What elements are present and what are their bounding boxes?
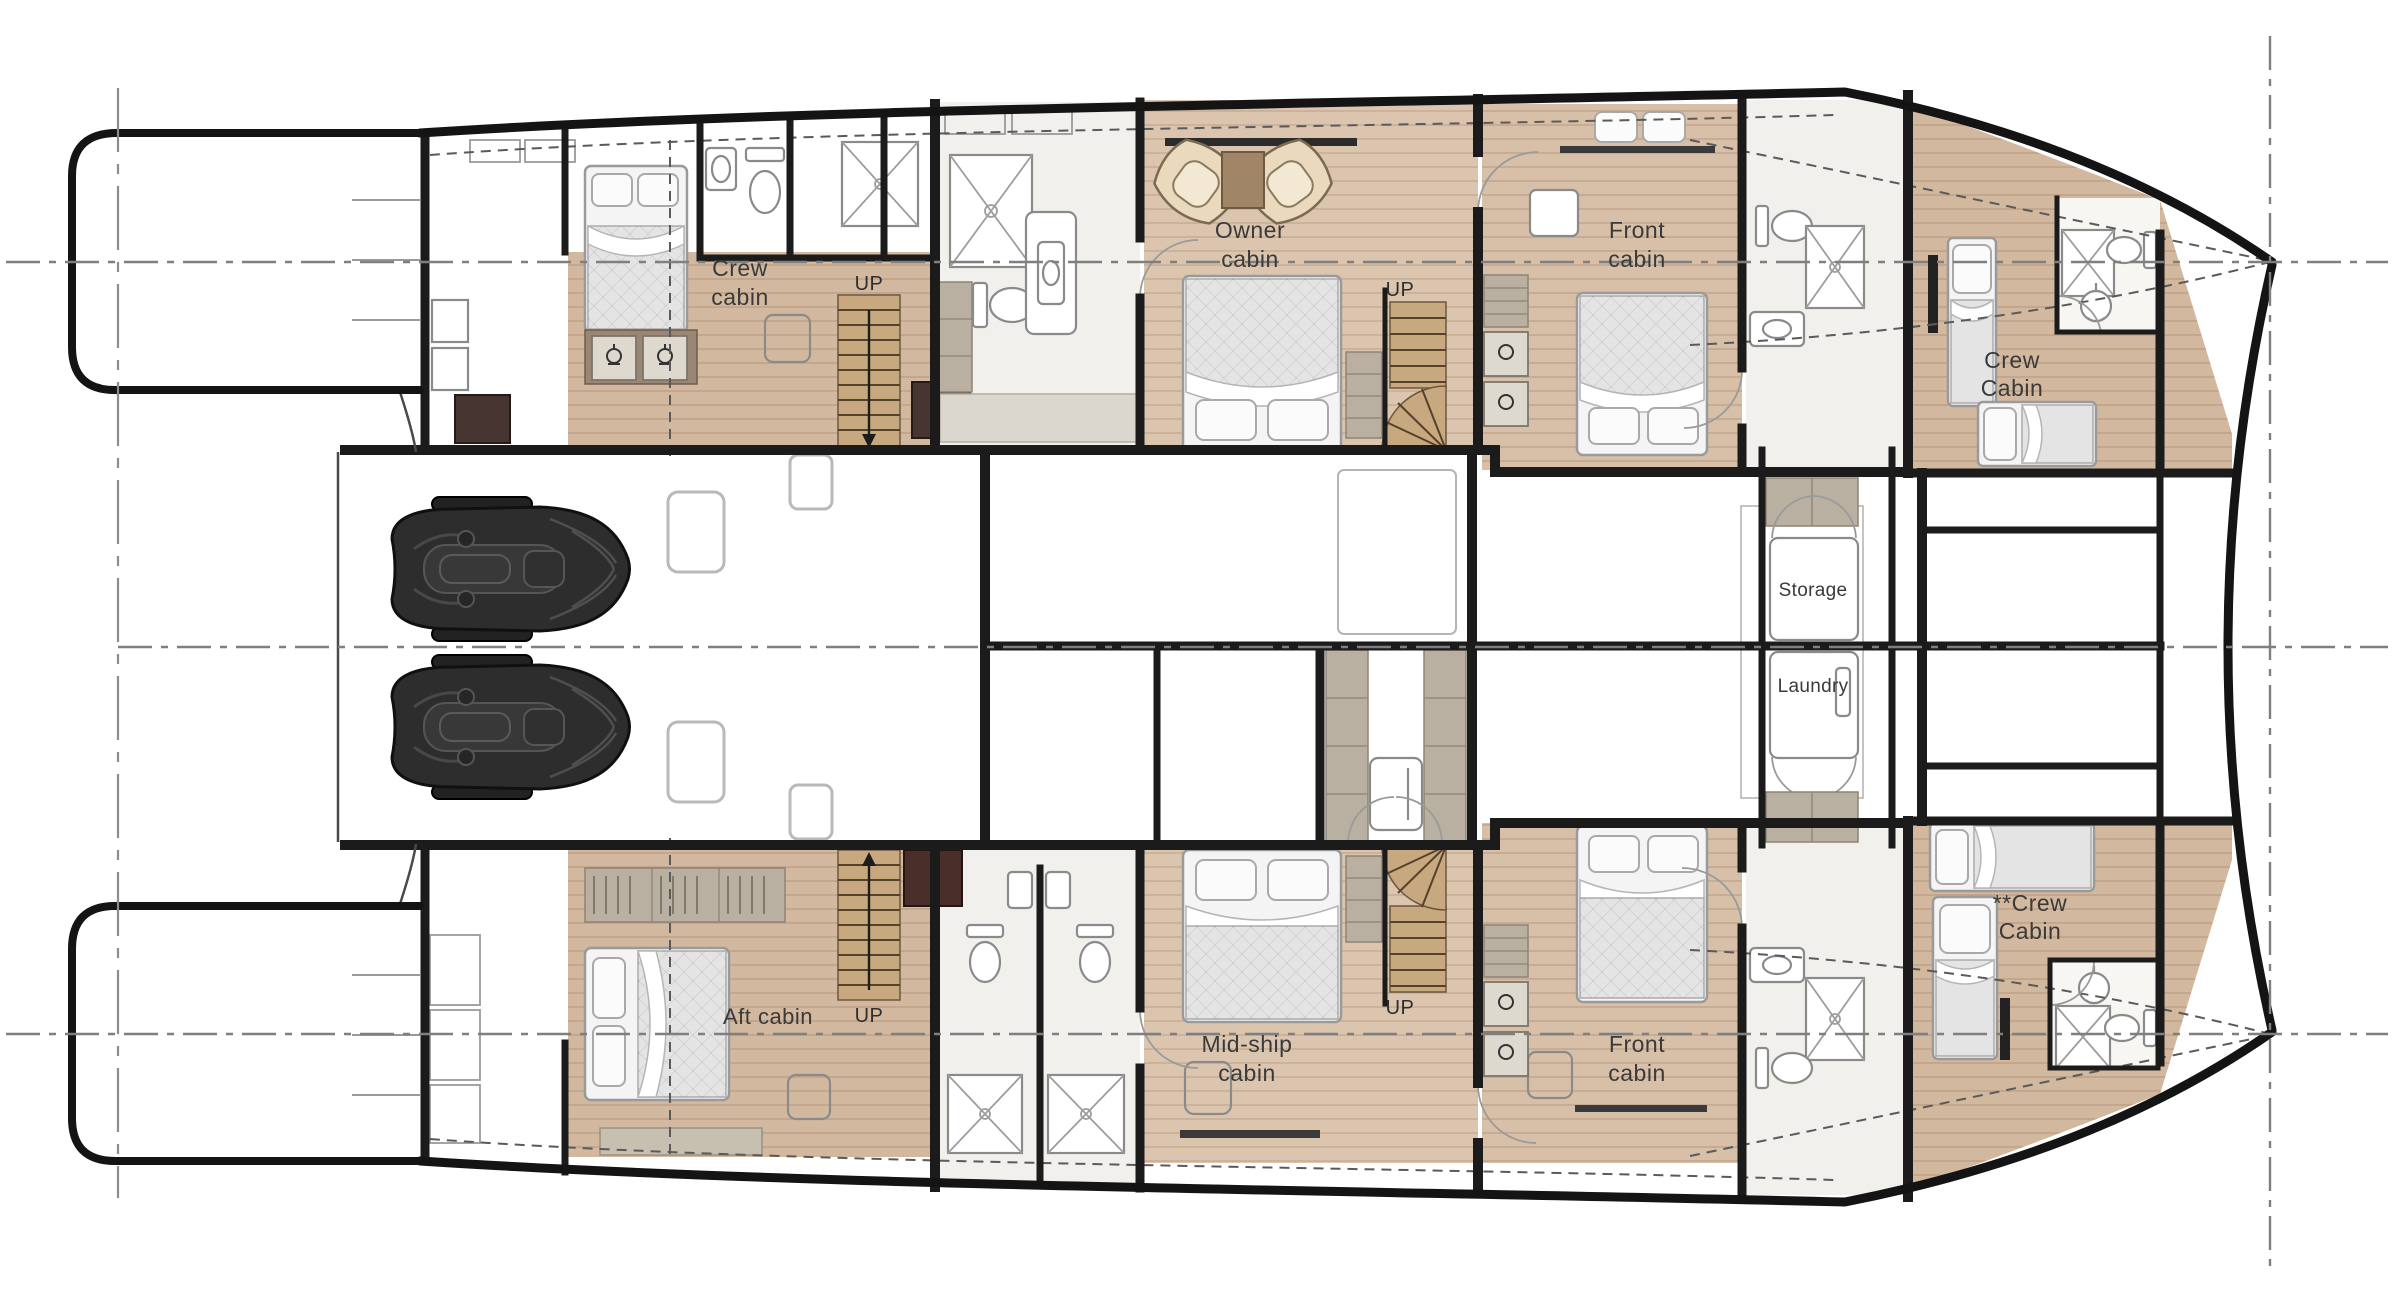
owner-vanity	[1026, 212, 1076, 334]
crew-cabin-aft-port-label-1: Crew	[712, 255, 768, 281]
sink	[1750, 948, 1804, 982]
deck-hatch	[790, 785, 832, 839]
locker-bar	[1928, 255, 1938, 333]
laundry-locker	[1770, 652, 1858, 799]
deck-hatch	[790, 455, 832, 509]
crew-cabin-bow-starboard-label-1: **Crew	[1993, 890, 2068, 916]
front-port-bed	[1577, 293, 1707, 455]
shower	[1806, 978, 1864, 1060]
storage-label: Storage	[1779, 580, 1848, 601]
nacelle-hatch	[1338, 470, 1456, 634]
floorplan-canvas: Crew cabin Owner cabin Front cabin Crew …	[0, 0, 2392, 1299]
aft-cabin-label: Aft cabin	[723, 1004, 813, 1029]
crew-cabin-bow-starboard-label-2: Cabin	[1999, 918, 2062, 944]
jet-ski-1	[392, 497, 630, 641]
mid-window-ledge	[1180, 1130, 1320, 1138]
stairs-port-aft	[838, 295, 900, 450]
mid-wardrobe	[1346, 856, 1382, 942]
crew-bow-port-bed-horizontal	[1978, 402, 2096, 466]
crew-cabin-bow-port-label-2: Cabin	[1981, 375, 2044, 401]
stairs-up-label-starboard-aft: UP	[855, 1005, 884, 1027]
stairs-up-label-port-aft: UP	[855, 273, 884, 295]
spiral-stairs-starboard	[1382, 846, 1446, 992]
owner-shower	[950, 155, 1032, 267]
front-stbd-bed	[1577, 826, 1707, 1002]
centre-wardrobe	[1326, 650, 1466, 843]
stairs-up-label-port-spiral: UP	[1386, 279, 1415, 301]
aft-bed	[585, 948, 729, 1100]
spiral-stairs-port	[1382, 302, 1446, 450]
front-port-window-ledge	[1560, 146, 1715, 153]
front-cabin-starboard-label-2: cabin	[1608, 1060, 1665, 1086]
dark-cabinet	[455, 395, 510, 443]
mid-ship-bed	[1183, 850, 1341, 1022]
front-cabin-starboard-label-1: Front	[1609, 1031, 1665, 1057]
shower	[1806, 226, 1864, 308]
catamaran-deck-plan: Crew cabin Owner cabin Front cabin Crew …	[0, 0, 2392, 1299]
crew-aft-toilet	[746, 148, 784, 213]
owner-side-table	[1222, 152, 1264, 208]
crew-aft-bed	[585, 166, 687, 332]
owner-cabin-label-1: Owner	[1215, 217, 1285, 243]
deck-hatch	[668, 722, 724, 802]
stairs-starboard-aft	[838, 850, 900, 1000]
locker-bar	[2000, 998, 2010, 1060]
owner-bed	[1183, 276, 1341, 452]
stairs-up-label-starboard-spiral: UP	[1386, 997, 1415, 1019]
crew-bow-stbd-bed-horizontal	[1930, 823, 2094, 891]
jet-ski-2	[392, 655, 630, 799]
front-cabin-port-label-2: cabin	[1608, 246, 1665, 272]
front-port-bedside	[1530, 190, 1578, 236]
aft-wardrobe	[585, 868, 785, 922]
laundry-label: Laundry	[1778, 676, 1849, 697]
crew-cabin-bow-port-label-1: Crew	[1984, 347, 2040, 373]
crew-aft-shower	[842, 142, 918, 226]
front-stbd-window-ledge	[1575, 1105, 1707, 1112]
crew-cabin-aft-port-label-2: cabin	[711, 284, 768, 310]
crew-aft-sink	[706, 148, 736, 190]
owner-wardrobe	[1346, 352, 1382, 438]
mid-ship-cabin-label-1: Mid-ship	[1202, 1031, 1293, 1057]
deck-hatch	[668, 492, 724, 572]
front-cabin-port-label-1: Front	[1609, 217, 1665, 243]
owner-cabin-label-2: cabin	[1221, 246, 1278, 272]
mid-ship-cabin-label-2: cabin	[1218, 1060, 1275, 1086]
